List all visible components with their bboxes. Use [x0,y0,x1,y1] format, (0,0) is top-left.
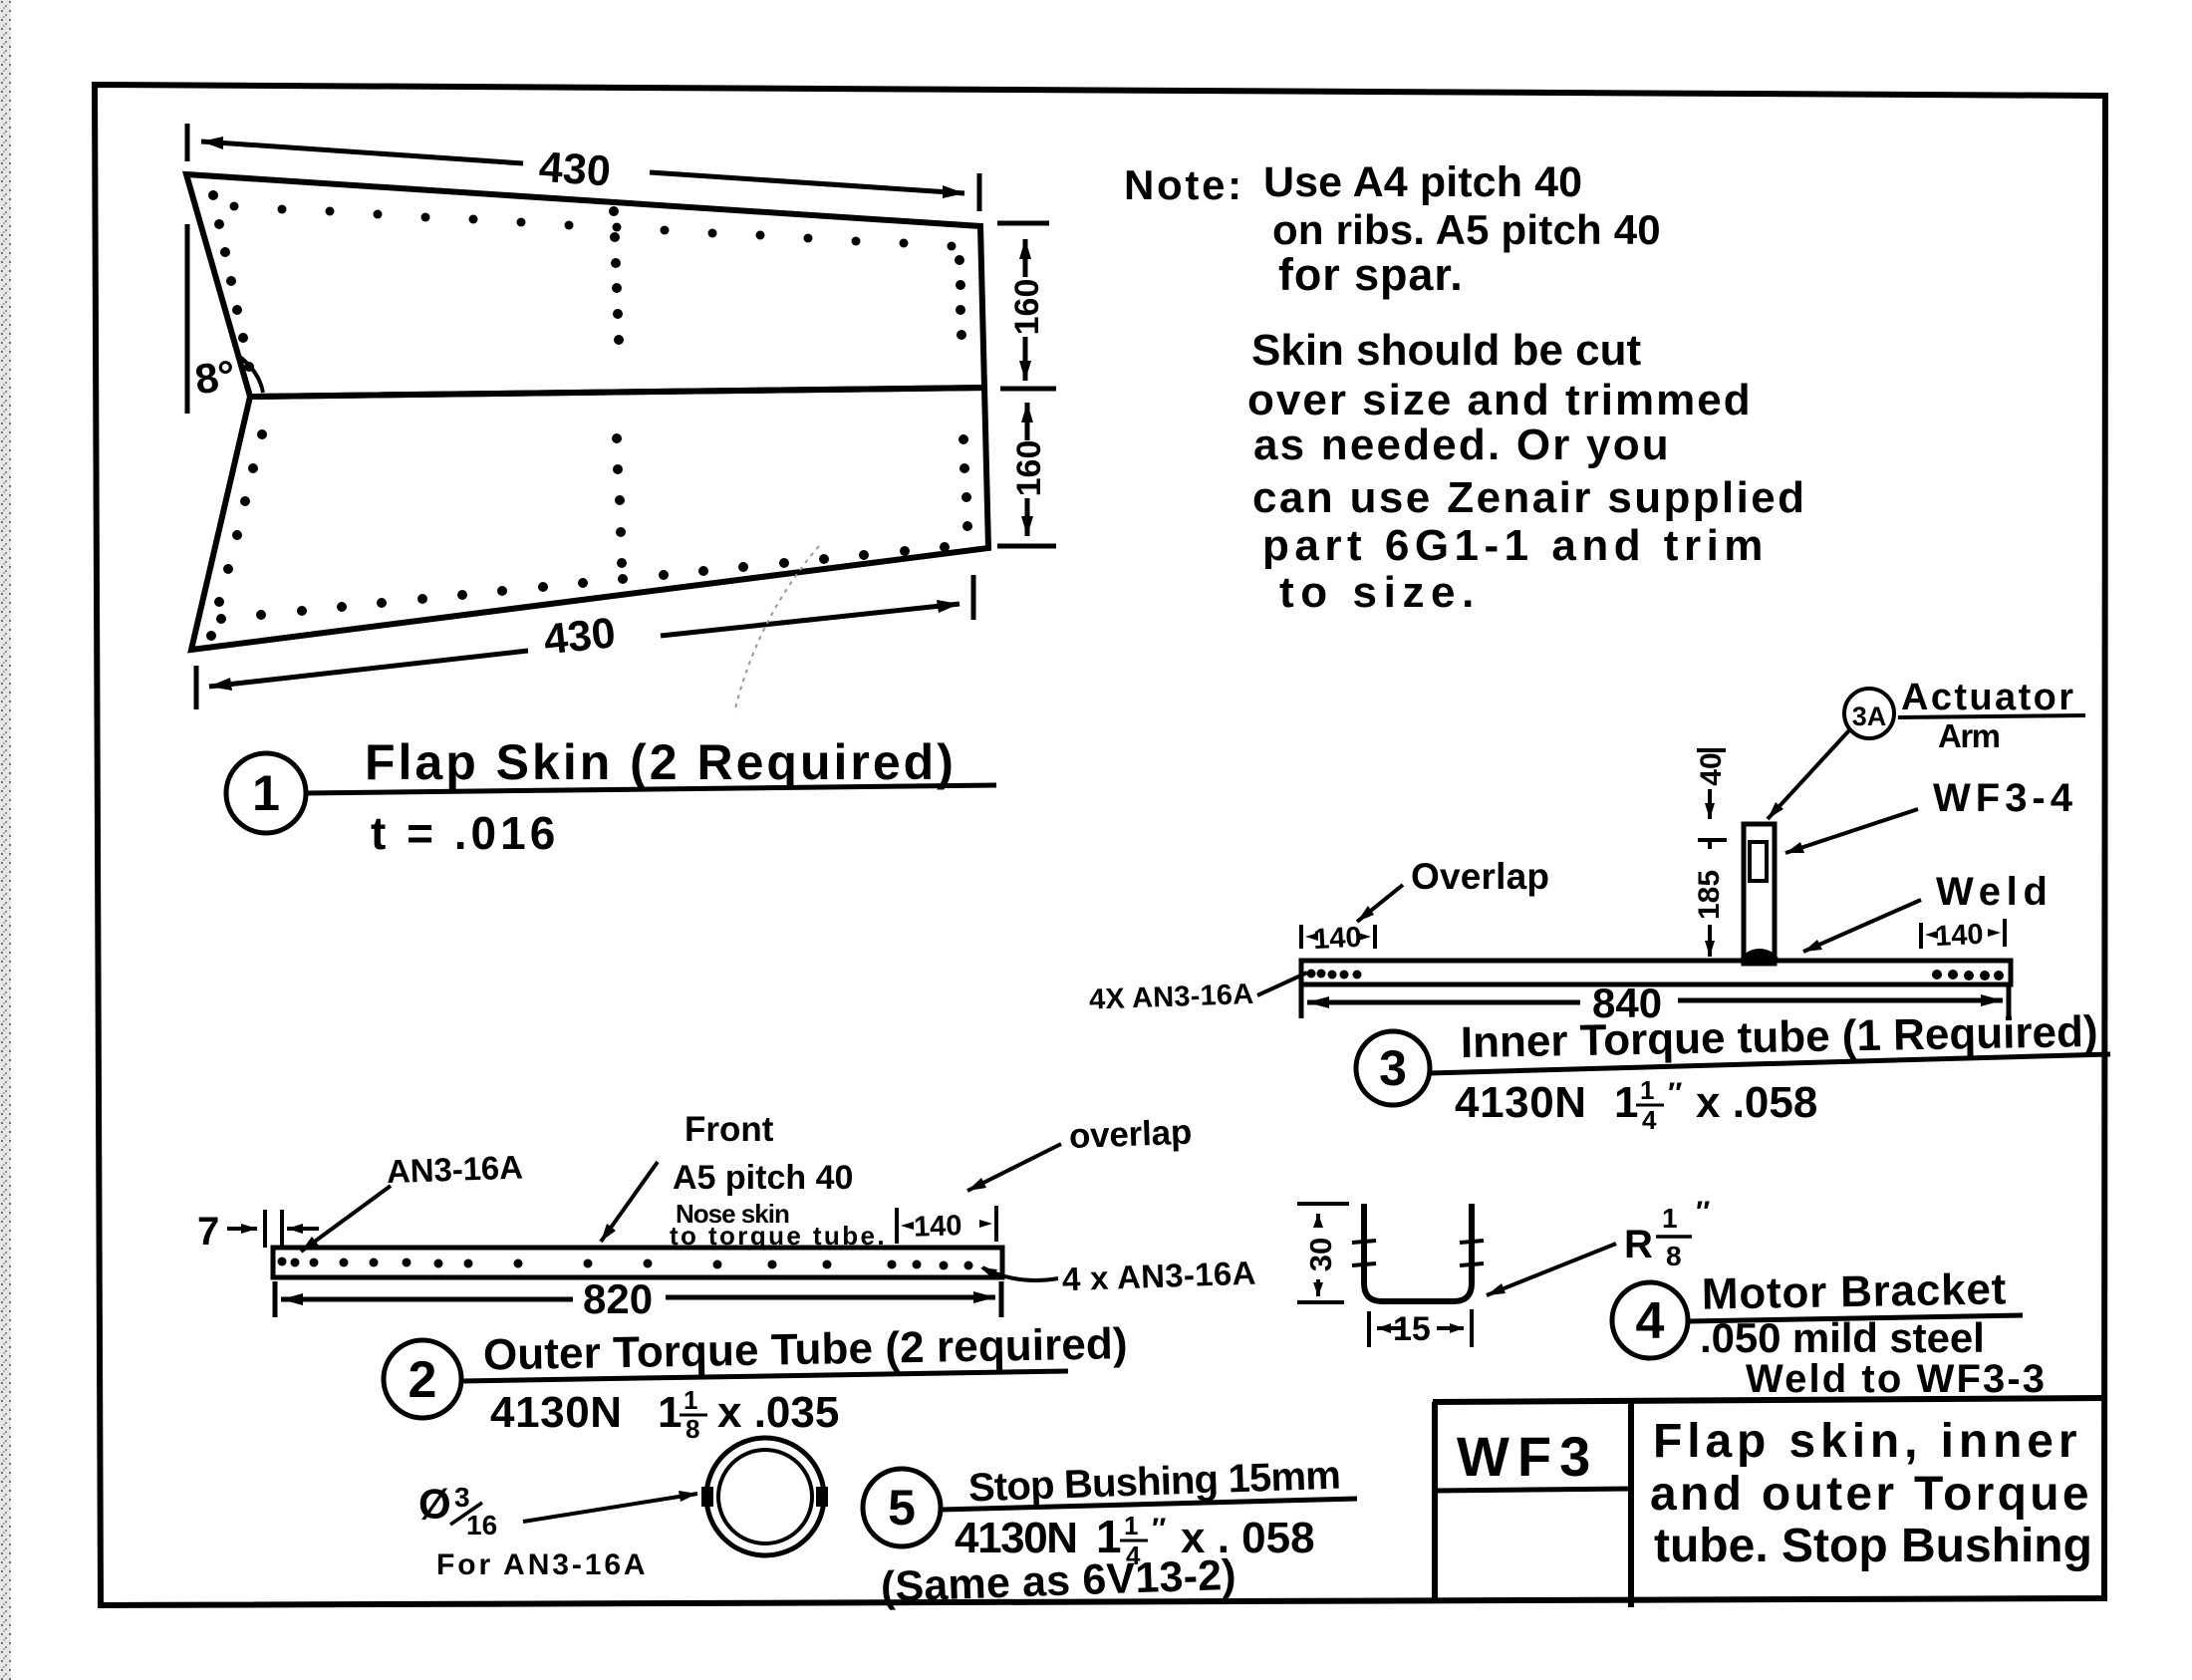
svg-text:Overlap: Overlap [1411,856,1549,897]
svg-text:4130N: 4130N [955,1514,1077,1562]
svg-text:1: 1 [1614,1078,1638,1127]
svg-text:Arm: Arm [1938,717,2000,754]
svg-text:for spar.: for spar. [1278,249,1464,300]
svg-text:and outer Torque: and outer Torque [1650,1468,2092,1521]
svg-text:tube. Stop Bushing: tube. Stop Bushing [1654,1520,2092,1572]
svg-text:R: R [1624,1223,1653,1266]
svg-text:4X AN3-16A: 4X AN3-16A [1089,979,1254,1016]
svg-text:.050 mild steel: .050 mild steel [1700,1314,1985,1361]
svg-text:WF3-4: WF3-4 [1933,776,2077,820]
svg-text:4: 4 [1642,1105,1657,1135]
svg-text:430: 430 [537,143,612,196]
svg-text:30: 30 [1303,1238,1338,1271]
svg-text:Ø: Ø [418,1481,451,1528]
svg-text:″: ″ [1668,1077,1682,1110]
svg-text:3: 3 [1379,1040,1407,1096]
svg-text:WF3: WF3 [1457,1425,1598,1488]
svg-text:to size.: to size. [1279,568,1481,617]
svg-text:1: 1 [252,765,280,821]
svg-text:1: 1 [684,1385,697,1415]
svg-text:AN3-16A: AN3-16A [386,1148,523,1190]
svg-text:160: 160 [1008,279,1046,336]
svg-text:part 6G1-1 and trim: part 6G1-1 and trim [1262,521,1769,570]
svg-text:Actuator: Actuator [1901,677,2075,718]
svg-text:1: 1 [1124,1511,1138,1540]
svg-text:5: 5 [888,1480,916,1536]
svg-text:on ribs. A5 pitch 40: on ribs. A5 pitch 40 [1272,206,1661,253]
svg-text:Motor Bracket: Motor Bracket [1701,1264,2007,1318]
svg-text:A5 pitch 40: A5 pitch 40 [673,1159,853,1197]
svg-text:2: 2 [409,1351,437,1409]
svg-text:430: 430 [542,609,618,664]
svg-text:as needed. Or you: as needed. Or you [1253,420,1671,469]
svg-text:4: 4 [1636,1292,1665,1350]
svg-text:For AN3-16A: For AN3-16A [436,1548,649,1581]
svg-text:x .058: x .058 [1696,1078,1817,1127]
svg-text:Weld to WF3-3: Weld to WF3-3 [1746,1357,2047,1401]
svg-text:over size and trimmed: over size and trimmed [1247,376,1753,424]
svg-text:820: 820 [583,1275,653,1322]
svg-text:8: 8 [685,1414,699,1444]
svg-text:185: 185 [1693,870,1726,920]
svg-text:4 x AN3-16A: 4 x AN3-16A [1061,1254,1256,1297]
svg-text:1: 1 [658,1388,682,1437]
svg-text:Weld: Weld [1936,870,2054,914]
svg-text:140: 140 [1312,922,1362,956]
svg-text:t = .016: t = .016 [371,807,559,859]
svg-text:160: 160 [1010,440,1048,497]
svg-text:x .035: x .035 [717,1388,839,1437]
svg-text:Flap Skin (2 Required): Flap Skin (2 Required) [365,734,957,790]
svg-text:140: 140 [1934,919,1984,953]
svg-text:Note:: Note: [1124,161,1244,208]
svg-text:8°: 8° [192,351,238,403]
svg-text:1: 1 [1640,1075,1654,1105]
svg-text:Front: Front [685,1110,774,1149]
svg-text:40: 40 [1695,752,1728,785]
svg-text:16: 16 [466,1510,497,1540]
svg-text:Skin should be cut: Skin should be cut [1251,326,1641,375]
svg-text:8: 8 [1666,1241,1682,1271]
svg-text:4130N: 4130N [490,1388,623,1437]
svg-text:3A: 3A [1852,701,1887,731]
svg-text:to torque tube.: to torque tube. [670,1221,887,1251]
svg-text:overlap: overlap [1068,1113,1192,1156]
svg-text:″: ″ [1696,1196,1710,1229]
svg-text:7: 7 [197,1210,219,1254]
svg-text:Flap skin, inner: Flap skin, inner [1653,1415,2081,1468]
svg-text:15: 15 [1393,1310,1431,1348]
svg-text:″: ″ [1152,1513,1166,1545]
svg-text:3: 3 [454,1482,470,1513]
svg-text:140: 140 [913,1210,961,1244]
svg-text:1: 1 [1662,1203,1678,1234]
svg-text:can use Zenair supplied: can use Zenair supplied [1252,473,1806,522]
svg-text:4130N: 4130N [1455,1078,1587,1127]
svg-text:Use A4 pitch 40: Use A4 pitch 40 [1263,158,1582,206]
